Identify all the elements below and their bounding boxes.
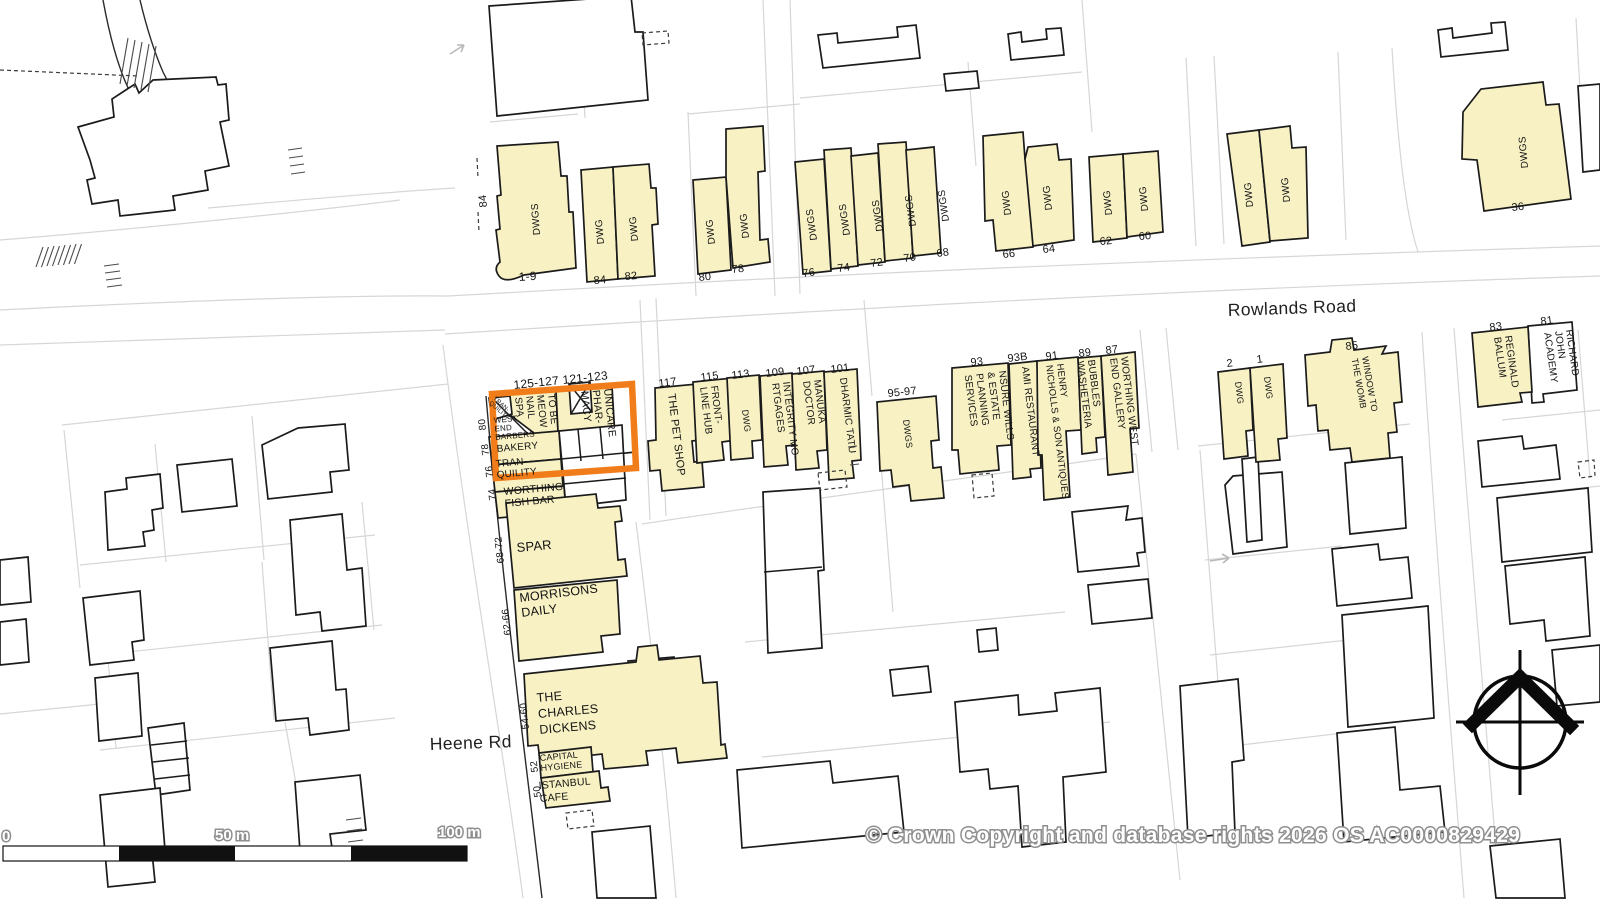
label-no-93b: 93B: [1007, 351, 1028, 365]
label-no-85: 85: [1345, 340, 1359, 353]
os-map-canvas[interactable]: 841-9DWGSDWGDWG8482DWGDWG8078DWGSDWGSDWG…: [0, 0, 1600, 900]
label-no-80: 80: [698, 271, 712, 284]
label-no-68-72: 68-72: [493, 536, 507, 564]
label-no-115: 115: [700, 370, 719, 384]
label-no-72: 72: [870, 256, 884, 270]
building-78: [726, 126, 770, 268]
label-no-70: 70: [903, 251, 917, 265]
label-no-81: 81: [1540, 314, 1554, 328]
scale-bar: 0 50 m 100 m: [2, 824, 481, 861]
label-no-78: 78: [731, 263, 745, 276]
label-no-68: 68: [936, 246, 950, 260]
label-no-62-66: 62-66: [500, 608, 514, 636]
building-window-to-the-womb: [1305, 338, 1402, 462]
road-label-heene: Heene Rd: [429, 731, 512, 754]
label-no-93: 93: [970, 356, 984, 369]
label-dwg-84: DWG: [594, 219, 607, 245]
scale-label-0: 0: [2, 828, 10, 845]
label-no-74-side: 74: [487, 488, 499, 501]
label-no-82: 82: [624, 270, 638, 283]
copyright-notice: © Crown Copyright and database rights 20…: [866, 824, 1520, 847]
label-no-2: 2: [1226, 357, 1234, 370]
label-no-66: 66: [1002, 248, 1016, 261]
label-no-1-9: 1-9: [518, 269, 537, 284]
label-no-74: 74: [837, 261, 851, 275]
label-no-84: 84: [593, 274, 607, 287]
label-dwg-60: DWG: [1138, 186, 1151, 212]
label-no-76: 76: [802, 266, 816, 280]
label-no-89: 89: [1078, 347, 1092, 360]
label-no-80-side: 80: [477, 418, 489, 431]
building-95-97: [877, 396, 944, 501]
label-no-109: 109: [765, 366, 785, 380]
label-no-87: 87: [1105, 344, 1119, 357]
scale-label-100: 100 m: [438, 824, 481, 841]
label-dwgs-1-9: DWGS: [530, 203, 543, 236]
label-dwg-lane-w: DWG: [1243, 182, 1256, 208]
label-no-64: 64: [1042, 243, 1056, 256]
label-capital-hygiene: CAPITALHYGIENE: [539, 749, 583, 773]
label-no-52: 52: [529, 760, 541, 773]
scale-label-50: 50 m: [215, 827, 249, 844]
label-no-113: 113: [731, 368, 750, 382]
road-label-rowlands: Rowlands Road: [1227, 296, 1356, 320]
label-no-60: 60: [1138, 230, 1152, 243]
label-no-101: 101: [830, 362, 850, 376]
label-spar: SPAR: [516, 537, 552, 555]
label-no-62: 62: [1099, 235, 1113, 248]
building-church-block: [78, 77, 229, 216]
label-no-78-side: 78: [480, 443, 492, 456]
label-no-107: 107: [796, 364, 816, 378]
label-no-84-side: 84: [477, 194, 490, 208]
label-no-117: 117: [658, 376, 677, 390]
label-no-50: 50: [532, 785, 544, 798]
label-no-83: 83: [1489, 320, 1503, 334]
building-36: [1462, 82, 1571, 211]
label-no-76-side: 76: [484, 465, 496, 478]
label-no-1: 1: [1256, 353, 1264, 366]
label-dwg-82: DWG: [628, 216, 641, 242]
label-no-36: 36: [1511, 201, 1525, 214]
label-dwg-lane-e: DWG: [1280, 177, 1293, 203]
label-no-91: 91: [1045, 350, 1059, 363]
label-dwg-62: DWG: [1102, 190, 1115, 216]
